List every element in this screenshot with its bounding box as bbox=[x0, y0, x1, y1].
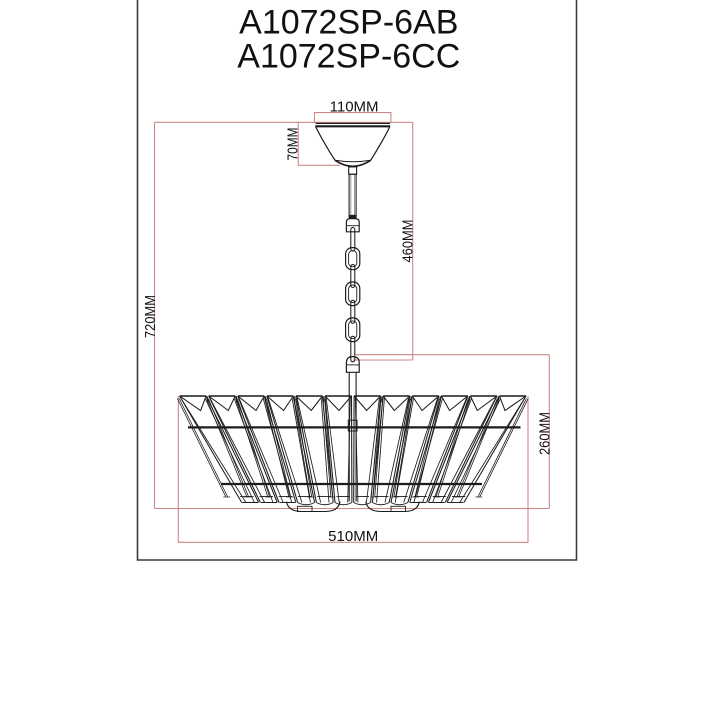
svg-text:A1072SP-6CC: A1072SP-6CC bbox=[237, 37, 460, 75]
svg-text:110MM: 110MM bbox=[330, 98, 379, 115]
svg-text:A1072SP-6AB: A1072SP-6AB bbox=[239, 4, 458, 42]
svg-text:260MM: 260MM bbox=[537, 412, 554, 455]
svg-text:70MM: 70MM bbox=[284, 128, 301, 161]
svg-text:720MM: 720MM bbox=[142, 295, 159, 338]
svg-text:510MM: 510MM bbox=[328, 528, 378, 545]
svg-text:460MM: 460MM bbox=[399, 220, 416, 263]
